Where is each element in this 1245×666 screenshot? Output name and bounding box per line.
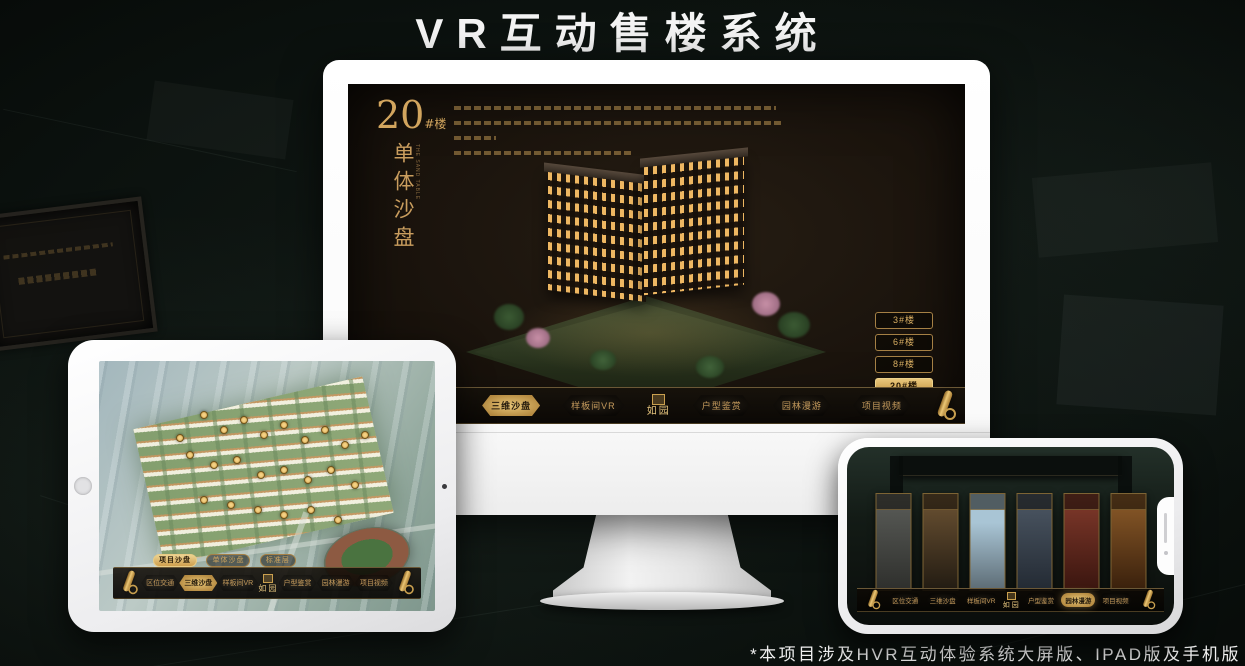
building-number-heading: 20#楼 <box>376 96 446 134</box>
menu-item-project-video[interactable]: 项目视频 <box>355 575 393 591</box>
phone-device: 区位交通 三维沙盘 样板间VR 如园 户型鉴赏 园林漫游 项目视频 <box>838 438 1183 634</box>
building-badge-icon[interactable] <box>341 441 349 449</box>
menu-item-project-video[interactable]: 项目视频 <box>1099 593 1133 607</box>
menu-item-3d-sandtable[interactable]: 三维沙盘 <box>179 575 217 591</box>
tree-decor <box>494 304 524 330</box>
building-badge-icon[interactable] <box>227 501 235 509</box>
building-badge-icon[interactable] <box>327 466 335 474</box>
tab-single-sandtable[interactable]: 单体沙盘 <box>206 554 250 567</box>
page-title: VR互动售楼系统 <box>0 0 1245 61</box>
tree-decor <box>590 350 616 370</box>
building-badge-icon[interactable] <box>321 426 329 434</box>
tree-decor <box>696 356 724 378</box>
tablet-device: 项目沙盘 单体沙盘 标准层 区位交通 三维沙盘 样板间VR 如园 户型鉴赏 园林… <box>68 340 456 632</box>
building-3d-render <box>460 156 832 408</box>
building-badge-icon[interactable] <box>301 436 309 444</box>
tablet-screen: 项目沙盘 单体沙盘 标准层 区位交通 三维沙盘 样板间VR 如园 户型鉴赏 园林… <box>99 361 435 611</box>
building-badge-icon[interactable] <box>176 434 184 442</box>
phone-screen: 区位交通 三维沙盘 样板间VR 如园 户型鉴赏 园林漫游 项目视频 <box>847 447 1174 625</box>
bg-plaque-decor <box>0 196 158 351</box>
menu-item-garden-tour[interactable]: 园林漫游 <box>317 575 355 591</box>
building-title-caption: THE SAND TABLE <box>414 144 420 200</box>
phone-notch <box>1157 497 1174 575</box>
bg-city-block <box>1056 295 1223 416</box>
floor-button-3[interactable]: 3#楼 <box>875 312 933 329</box>
category-scroll-panels[interactable] <box>875 493 1146 591</box>
tree-decor <box>526 328 550 348</box>
scroll-ornament-icon[interactable] <box>395 571 414 595</box>
monitor-stand <box>553 513 771 601</box>
panel-card[interactable] <box>922 493 958 591</box>
building-wing <box>644 157 744 296</box>
menu-item-unit-plans[interactable]: 户型鉴赏 <box>279 575 317 591</box>
floor-button-6[interactable]: 6#楼 <box>875 334 933 351</box>
tab-standard-floor[interactable]: 标准层 <box>260 554 296 567</box>
gate-lintel-render <box>899 456 1121 477</box>
menu-item-showroom-vr[interactable]: 样板间VR <box>217 575 258 591</box>
building-badge-icon[interactable] <box>307 506 315 514</box>
building-badge-icon[interactable] <box>210 461 218 469</box>
building-badge-icon[interactable] <box>200 496 208 504</box>
speaker-icon <box>1164 513 1167 543</box>
panel-card[interactable] <box>1016 493 1052 591</box>
home-button[interactable] <box>74 477 92 495</box>
building-badge-icon[interactable] <box>304 476 312 484</box>
scroll-ornament-icon[interactable] <box>1140 590 1156 610</box>
menu-item-3d-sandtable[interactable]: 三维沙盘 <box>482 395 540 416</box>
bg-city-block <box>147 81 294 160</box>
building-badge-icon[interactable] <box>260 431 268 439</box>
monitor-stand-base <box>540 592 784 610</box>
menu-item-showroom-vr[interactable]: 样板间VR <box>562 395 625 416</box>
menu-item-project-video[interactable]: 项目视频 <box>853 395 911 416</box>
brand-logo: 如园 <box>647 394 671 417</box>
menu-item-showroom-vr[interactable]: 样板间VR <box>963 593 1000 607</box>
menu-item-location[interactable]: 区位交通 <box>888 593 922 607</box>
panel-card[interactable] <box>969 493 1005 591</box>
tablet-menubar: 区位交通 三维沙盘 样板间VR 如园 户型鉴赏 园林漫游 项目视频 <box>113 567 421 599</box>
footnote-text: *本项目涉及HVR互动体验系统大屏版、IPAD版及手机版 <box>750 640 1241 665</box>
building-wing <box>548 172 646 302</box>
panel-card[interactable] <box>1063 493 1099 591</box>
building-badge-icon[interactable] <box>257 471 265 479</box>
bg-city-block <box>1032 162 1218 257</box>
building-badge-icon[interactable] <box>186 451 194 459</box>
building-badge-icon[interactable] <box>280 511 288 519</box>
tree-decor <box>778 312 810 338</box>
menu-item-location[interactable]: 区位交通 <box>141 575 179 591</box>
menu-item-garden-tour[interactable]: 园林漫游 <box>1061 593 1095 607</box>
building-badge-icon[interactable] <box>220 426 228 434</box>
menu-item-unit-plans[interactable]: 户型鉴赏 <box>693 395 751 416</box>
menu-item-garden-tour[interactable]: 园林漫游 <box>773 395 831 416</box>
building-badge-icon[interactable] <box>334 516 342 524</box>
seal-icon <box>1007 592 1016 600</box>
building-badge-icon[interactable] <box>351 481 359 489</box>
building-badge-icon[interactable] <box>280 421 288 429</box>
seal-icon <box>652 394 665 405</box>
brand-logo: 如园 <box>1003 592 1021 609</box>
scroll-ornament-icon[interactable] <box>119 571 138 595</box>
tree-decor <box>752 292 780 316</box>
floor-button-8[interactable]: 8#楼 <box>875 356 933 373</box>
residential-building <box>548 160 748 320</box>
building-badge-icon[interactable] <box>200 411 208 419</box>
scroll-ornament-icon[interactable] <box>865 590 881 610</box>
seal-icon <box>263 574 273 583</box>
building-badge-icon[interactable] <box>254 506 262 514</box>
menu-item-unit-plans[interactable]: 户型鉴赏 <box>1024 593 1058 607</box>
panel-card[interactable] <box>875 493 911 591</box>
promo-canvas: VR互动售楼系统 20#楼 单体沙盘 THE SAND TABLE <box>0 0 1245 666</box>
scroll-ornament-icon[interactable] <box>933 391 957 421</box>
brand-logo: 如园 <box>258 574 278 593</box>
panel-card[interactable] <box>1110 493 1146 591</box>
camera-icon <box>1164 551 1168 555</box>
tab-project-sandtable[interactable]: 项目沙盘 <box>153 554 197 567</box>
phone-menubar: 区位交通 三维沙盘 样板间VR 如园 户型鉴赏 园林漫游 项目视频 <box>857 588 1164 612</box>
tablet-sandtable-tabs: 项目沙盘 单体沙盘 标准层 <box>153 549 301 567</box>
building-badge-icon[interactable] <box>280 466 288 474</box>
building-badge-icon[interactable] <box>240 416 248 424</box>
building-badge-icon[interactable] <box>361 431 369 439</box>
menu-item-3d-sandtable[interactable]: 三维沙盘 <box>926 593 960 607</box>
building-badge-icon[interactable] <box>233 456 241 464</box>
camera-icon <box>442 484 447 489</box>
